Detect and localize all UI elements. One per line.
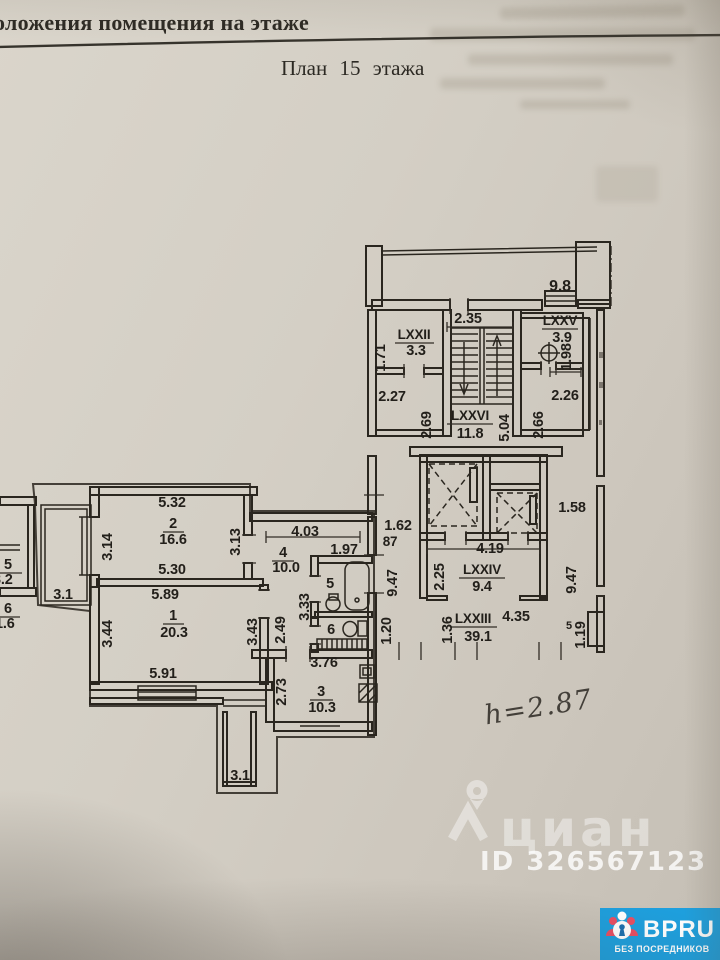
dim-4-19: 4.19 [476, 541, 504, 557]
cian-logo-mountain-icon [452, 810, 484, 839]
dim-1-71: 1.71 [373, 344, 389, 372]
neighbor-room5-number: 5 [4, 557, 12, 573]
hall-number: 4 [279, 545, 287, 561]
room2-dim-top: 5.32 [158, 495, 186, 511]
neighbor-room6-number: 6 [4, 601, 12, 617]
dim-1-58: 1.58 [558, 500, 586, 516]
dim-2-26: 2.26 [551, 388, 579, 404]
cian-watermark: циан ID 326567123 [452, 780, 707, 877]
hall-dim-top: 4.03 [291, 524, 319, 540]
bpru-badge[interactable]: BPRU БЕЗ ПОСРЕДНИКОВ [600, 908, 720, 960]
bathtub-icon [345, 562, 369, 610]
dim-door-87: 87 [383, 534, 398, 549]
room1-dim-left: 3.44 [100, 620, 116, 648]
dim-2-66: 2.66 [531, 411, 547, 439]
handwritten-ceiling-height: h=2.87 [482, 684, 595, 732]
neighbor-room6-area: 1.6 [0, 616, 15, 632]
dim-1-98: 1.98 [559, 343, 575, 371]
kitchen-dim-top: 3.76 [310, 655, 338, 671]
document-title-partial: оложения помещения на этаже [0, 10, 309, 35]
wc-number: 6 [327, 622, 335, 638]
hall-area: 10.0 [272, 560, 300, 576]
room1-dim-right: 3.43 [245, 618, 261, 646]
room2-number: 2 [169, 516, 177, 532]
plan-title: План 15 этажа [281, 56, 425, 80]
dim-1-36: 1.36 [440, 616, 456, 644]
bath-number: 5 [326, 576, 334, 592]
dim-9-47-right: 9.47 [564, 566, 580, 594]
dim-2-69: 2.69 [419, 411, 435, 439]
room1-dim-top: 5.89 [151, 587, 179, 603]
bath-dim-top: 1.97 [330, 542, 358, 558]
room2-dim-bottom: 5.30 [158, 562, 186, 578]
room2-dim-left: 3.14 [100, 533, 116, 561]
toilet-icon [343, 622, 357, 637]
room-lxxii-area: 3.3 [406, 343, 426, 359]
room2-area: 16.6 [159, 532, 187, 548]
room-lxxvi-area: 11.8 [457, 426, 484, 442]
balcony-left-area: 3.1 [53, 587, 73, 603]
bathtub-drain-icon [355, 598, 359, 602]
room2-dim-right: 3.13 [228, 528, 244, 556]
document-header: оложения помещения на этаже План 15 этаж… [0, 10, 720, 80]
header-rule [0, 35, 720, 47]
room-lxxiii-area: 39.1 [464, 629, 492, 645]
staircase-icon [451, 328, 513, 404]
dim-1-19: 1.19 [573, 621, 589, 649]
dim-1-20: 1.20 [379, 617, 395, 645]
balcony-bottom-area: 3.1 [230, 768, 250, 784]
watermark-listing-id: ID 326567123 [480, 847, 707, 877]
room-lxxv-name: LXXV [543, 313, 578, 328]
dim-1-62: 1.62 [384, 518, 412, 534]
room-lxxii-name: LXXII [398, 327, 431, 342]
room-lxxvi-name: LXXVI [451, 408, 489, 423]
bath-dim-left: 3.33 [297, 593, 313, 621]
badge-brand: BPRU [643, 916, 715, 943]
kitchen-area: 10.3 [308, 700, 336, 716]
dim-5-small: 5 [566, 620, 572, 632]
wc-dim-left: 2.49 [273, 616, 289, 644]
dim-2-35: 2.35 [454, 311, 482, 327]
toilet-tank-icon [358, 621, 367, 636]
room-lxxiv-area: 9.4 [472, 579, 492, 595]
dim-2-25: 2.25 [432, 563, 448, 591]
room-lxxiii-name: LXXIII [455, 611, 491, 626]
dim-2-27: 2.27 [378, 389, 406, 405]
room-lxxiv-name: LXXIV [463, 562, 501, 577]
roof-balcony-area: 9.8 [549, 278, 571, 295]
neighbor-room5-area: 3.2 [0, 572, 13, 588]
floor-plan-drawing: оложения помещения на этаже План 15 этаж… [0, 0, 720, 960]
kitchen-dim-left: 2.73 [274, 678, 290, 706]
keyhole-icon [619, 924, 625, 930]
dim-9-47-left: 9.47 [385, 569, 401, 597]
illegible-wall-marks [599, 352, 603, 425]
dim-5-04: 5.04 [497, 414, 513, 442]
scanned-floor-plan-photo: оложения помещения на этаже План 15 этаж… [0, 0, 720, 960]
kitchen-number: 3 [317, 684, 325, 700]
badge-tagline: БЕЗ ПОСРЕДНИКОВ [615, 944, 710, 954]
room1-number: 1 [169, 608, 177, 624]
room1-area: 20.3 [160, 625, 188, 641]
room1-dim-bottom: 5.91 [149, 666, 177, 682]
dim-4-35: 4.35 [502, 609, 530, 625]
